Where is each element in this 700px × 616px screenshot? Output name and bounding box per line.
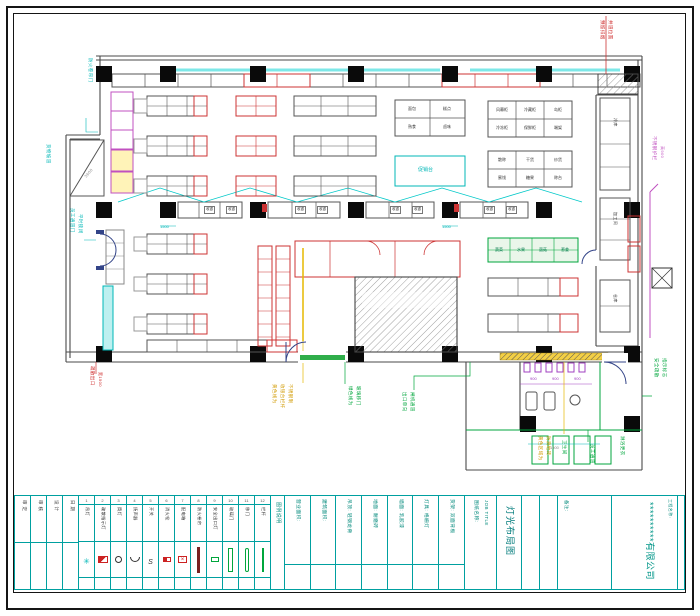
legend-column: 10 玻璃门	[223, 496, 239, 589]
legend-symbol-icon	[211, 557, 219, 562]
gondola-shelves-upper	[134, 96, 572, 196]
legend-label: 扬声器	[133, 507, 137, 521]
finish-label: 地面: 耐磨砖	[371, 499, 376, 528]
legend-footer-cell	[127, 578, 142, 589]
signature-column: 设 计	[47, 496, 63, 589]
legend-symbol-cell	[143, 542, 158, 578]
legend-symbol-icon	[163, 557, 171, 562]
legend-label-cell: 防火卷帘	[191, 505, 206, 542]
signature-label: 审 定	[22, 500, 27, 511]
legend-label: 防火卷帘	[197, 507, 201, 525]
legend-label: 疏散指示灯	[101, 507, 105, 530]
signature-label-cell: 审 核	[31, 496, 46, 543]
legend-symbol-cell	[223, 542, 238, 578]
finish-column: 灯具: 格栅灯	[413, 496, 439, 589]
legend-index: 5	[143, 496, 158, 505]
legend-column: 11 移门	[239, 496, 255, 589]
legend-column: 1 吊灯	[79, 496, 95, 589]
legend-footer-cell	[143, 578, 158, 589]
legend-index: 2	[95, 496, 110, 505]
legend-index: 10	[223, 496, 238, 505]
finish-column: 吊顶: 轻钢龙骨	[336, 496, 362, 589]
legend-label: 开关	[149, 507, 153, 516]
signature-label-cell: 设 计	[47, 496, 62, 543]
legend-footer-cell	[79, 578, 94, 589]
finish-column: 货架: 双面背板	[439, 496, 465, 589]
legend-footer-cell	[159, 578, 174, 589]
legend-label: 配电箱	[181, 507, 185, 521]
legend-column: 5 开关	[143, 496, 159, 589]
signature-label: 审 核	[38, 500, 43, 511]
title-block: 审 定 审 核 设 计 日 期 1 吊灯	[14, 495, 685, 590]
legend-footer-cell	[255, 578, 270, 589]
spare-cell-3	[678, 496, 684, 589]
legend-label-cell: 安全出口灯	[207, 505, 222, 542]
legend-index: 8	[191, 496, 206, 505]
legend-symbol-icon	[262, 548, 264, 572]
legend-column: 2 疏散指示灯	[95, 496, 111, 589]
legend-symbol-cell	[255, 542, 270, 578]
legend-footer-cell	[95, 578, 110, 589]
legend-label-cell: 开关	[143, 505, 158, 542]
legend-symbol-icon	[130, 557, 140, 562]
finish-label: 建筑面积:	[320, 499, 325, 522]
legend-label-cell: 消火栓	[159, 505, 174, 542]
legend-label: 吊灯	[85, 507, 89, 516]
finish-label: 吊顶: 轻钢龙骨	[346, 499, 351, 534]
signature-value-cell	[63, 543, 78, 589]
signature-value-cell	[31, 543, 46, 589]
finish-label: 货架: 双面背板	[448, 499, 453, 534]
signature-table: 审 定 审 核 设 计 日 期	[15, 496, 79, 589]
legend-symbol-cell	[127, 542, 142, 578]
legend-symbol-cell	[159, 542, 174, 578]
legend-symbol-cell	[207, 542, 222, 578]
project-label: 工程名称:	[668, 499, 672, 518]
legend-column: 3 筒灯	[111, 496, 127, 589]
legend-label: 玻璃门	[229, 507, 233, 521]
legend-label: 栏杆	[261, 507, 265, 516]
signature-value-cell	[15, 543, 30, 589]
spare-cell-1	[522, 496, 540, 589]
finish-label: 灯具: 格栅灯	[423, 499, 428, 528]
job-title-en: JOB TITLE	[483, 500, 488, 526]
finish-column: 墙面: 乳胶漆	[388, 496, 414, 589]
legend-symbol-icon	[115, 556, 122, 563]
legend-label-cell: 栏杆	[255, 505, 270, 542]
legend-symbol-icon	[178, 556, 187, 563]
legend-label-cell: 扬声器	[127, 505, 142, 542]
legend-footer-cell	[223, 578, 238, 589]
finish-label: 墙面: 乳胶漆	[397, 499, 402, 528]
legend-label: 筒灯	[117, 507, 121, 516]
legend-index: 6	[159, 496, 174, 505]
signature-label-cell: 日 期	[63, 496, 78, 543]
signature-label: 日 期	[70, 500, 75, 511]
legend-symbol-icon	[98, 556, 108, 563]
signature-value-cell	[47, 543, 62, 589]
legend-symbol-icon	[197, 547, 200, 573]
signature-label-cell: 审 定	[15, 496, 30, 543]
legend-symbol-cell	[79, 542, 94, 578]
legend-index: 1	[79, 496, 94, 505]
legend-column: 4 扬声器	[127, 496, 143, 589]
signature-column: 审 核	[31, 496, 47, 589]
legend-symbol-icon	[228, 548, 233, 572]
legend-footer-cell	[239, 578, 254, 589]
perimeter-shelving	[112, 70, 640, 87]
legend-header: 图例说明	[275, 502, 280, 524]
legend-label-cell: 筒灯	[111, 505, 126, 542]
annex-rooms	[466, 353, 642, 464]
legend-footer-cell	[191, 578, 206, 589]
legend-label: 移门	[245, 507, 249, 516]
legend-column: 6 消火栓	[159, 496, 175, 589]
legend-header-cell: 图例说明	[271, 496, 285, 589]
drawing-title-cell: 灯光布局图	[497, 496, 522, 589]
company-name: **********有限公司	[645, 502, 654, 580]
signature-label: 设 计	[54, 500, 59, 511]
legend-symbol-cell	[191, 542, 206, 578]
receiving-ramp	[70, 92, 133, 196]
cad-sheet: { "sheet": { "company": "**********有限公司"…	[0, 0, 700, 616]
legend-index: 4	[127, 496, 142, 505]
notes-label: 备注:	[563, 500, 568, 511]
legend-index: 11	[239, 496, 254, 505]
legend-column: 9 安全出口灯	[207, 496, 223, 589]
legend-symbol-icon	[148, 551, 153, 569]
finish-label: 营业面积:	[294, 499, 299, 522]
legend-footer-cell	[111, 578, 126, 589]
legend-label-cell: 吊灯	[79, 505, 94, 542]
notes-cell: 备注:	[558, 496, 612, 589]
walls-layer	[66, 56, 642, 470]
spare-cell-2	[540, 496, 558, 589]
legend-label: 消火栓	[165, 507, 169, 521]
legend-index: 3	[111, 496, 126, 505]
legend-index: 7	[175, 496, 190, 505]
legend-footer-cell	[207, 578, 222, 589]
legend-label-cell: 配电箱	[175, 505, 190, 542]
legend-label: 安全出口灯	[213, 507, 217, 530]
company-cell: 工程名称: **********有限公司	[612, 496, 678, 589]
drawing-title: 灯光布局图	[505, 506, 514, 556]
job-title-label: 图纸名称:	[472, 500, 477, 523]
legend-symbol-cell	[239, 542, 254, 578]
legend-footer-cell	[175, 578, 190, 589]
legend-symbol-cell	[175, 542, 190, 578]
legend-column: 7 配电箱	[175, 496, 191, 589]
legend-table: 1 吊灯 2 疏散指示灯 3 筒灯	[79, 496, 271, 589]
finish-column: 建筑面积:	[311, 496, 337, 589]
legend-column: 12 栏杆	[255, 496, 271, 589]
legend-label-cell: 玻璃门	[223, 505, 238, 542]
finishes-table: 营业面积: 建筑面积: 吊顶: 轻钢龙骨 地面: 耐磨砖 墙面: 乳胶漆 灯具:…	[285, 496, 465, 589]
legend-symbol-icon	[245, 548, 249, 572]
job-title-label-cell: 图纸名称: JOB TITLE	[465, 496, 497, 589]
legend-column: 8 防火卷帘	[191, 496, 207, 589]
signature-column: 日 期	[63, 496, 79, 589]
legend-index: 9	[207, 496, 222, 505]
legend-symbol-cell	[111, 542, 126, 578]
legend-symbol-icon	[83, 551, 90, 569]
legend-symbol-cell	[95, 542, 110, 578]
finish-column: 地面: 耐磨砖	[362, 496, 388, 589]
legend-label-cell: 疏散指示灯	[95, 505, 110, 542]
signature-column: 审 定	[15, 496, 31, 589]
legend-index: 12	[255, 496, 270, 505]
finish-column: 营业面积:	[285, 496, 311, 589]
legend-label-cell: 移门	[239, 505, 254, 542]
